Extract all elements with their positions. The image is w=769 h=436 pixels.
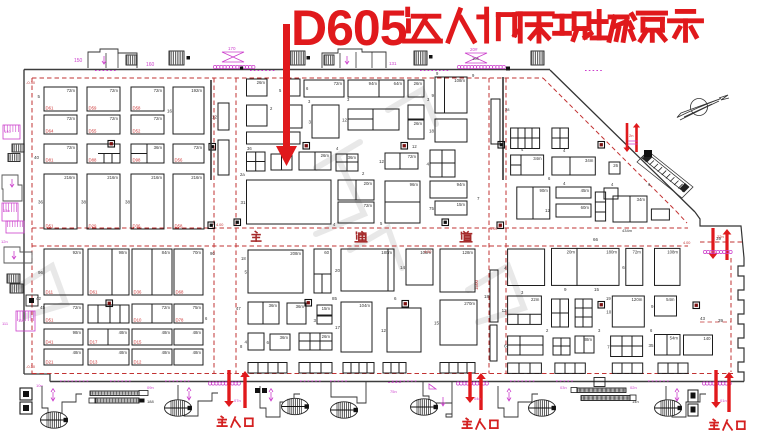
svg-text:D61: D61: [90, 290, 98, 295]
svg-text:104m: 104m: [359, 303, 370, 308]
svg-text:36: 36: [247, 146, 252, 151]
svg-text:D88: D88: [89, 158, 97, 163]
svg-text:75n: 75n: [390, 389, 397, 394]
svg-text:42: 42: [36, 296, 42, 301]
svg-text:18: 18: [241, 256, 246, 261]
svg-text:54m: 54m: [666, 297, 675, 302]
svg-text:39: 39: [718, 318, 724, 323]
svg-text:18: 18: [484, 294, 490, 299]
svg-text:D36: D36: [134, 290, 142, 295]
svg-text:34m: 34m: [585, 158, 594, 163]
svg-text:4.00: 4.00: [216, 223, 223, 227]
svg-text:98m: 98m: [73, 330, 82, 335]
svg-text:01n: 01n: [720, 398, 727, 403]
svg-text:90m: 90m: [539, 188, 548, 193]
svg-text:150: 150: [74, 58, 83, 64]
svg-text:36m: 36m: [269, 303, 278, 308]
svg-text:72m: 72m: [334, 81, 343, 86]
svg-text:D11: D11: [46, 290, 54, 295]
svg-text:12: 12: [545, 208, 551, 213]
svg-text:208m: 208m: [290, 251, 301, 256]
svg-text:20m: 20m: [364, 181, 373, 186]
svg-text:14n: 14n: [632, 399, 639, 404]
svg-text:216m: 216m: [107, 175, 118, 180]
svg-text:D64: D64: [46, 129, 54, 134]
svg-text:26m: 26m: [321, 153, 330, 158]
svg-text:D15: D15: [134, 340, 142, 345]
svg-text:140: 140: [703, 336, 711, 341]
svg-text:60: 60: [324, 250, 329, 255]
svg-text:216m: 216m: [191, 175, 202, 180]
svg-text:36: 36: [38, 200, 44, 205]
svg-text:04n: 04n: [474, 396, 481, 401]
svg-text:43: 43: [700, 316, 706, 321]
svg-text:12: 12: [412, 144, 417, 149]
svg-text:12: 12: [342, 118, 348, 123]
svg-text:110: 110: [18, 318, 25, 323]
svg-text:45: 45: [40, 305, 46, 310]
svg-text:-0.30: -0.30: [26, 80, 36, 85]
svg-text:22m: 22m: [531, 297, 540, 302]
svg-text:48m: 48m: [119, 330, 128, 335]
svg-text:D21: D21: [46, 360, 54, 365]
svg-text:4.00: 4.00: [490, 227, 497, 231]
svg-text:26m: 26m: [414, 121, 423, 126]
svg-text:D56: D56: [175, 158, 183, 163]
svg-text:75: 75: [429, 206, 435, 211]
svg-text:434m: 434m: [622, 228, 633, 233]
svg-text:72m: 72m: [110, 116, 119, 121]
svg-text:92m: 92m: [73, 250, 82, 255]
svg-text:72m: 72m: [73, 305, 82, 310]
svg-text:36m: 36m: [154, 145, 163, 150]
svg-text:72m: 72m: [408, 154, 417, 159]
svg-text:48m: 48m: [193, 330, 202, 335]
svg-text:72m: 72m: [154, 88, 163, 93]
svg-text:35: 35: [648, 343, 654, 348]
svg-text:104: 104: [472, 56, 479, 61]
svg-text:2n: 2n: [629, 133, 633, 138]
svg-text:15: 15: [594, 287, 600, 292]
svg-text:48m: 48m: [119, 350, 128, 355]
svg-text:160: 160: [146, 62, 155, 68]
svg-text:22n: 22n: [717, 234, 724, 239]
svg-text:131: 131: [389, 61, 397, 66]
svg-text:D51: D51: [46, 318, 54, 323]
svg-text:17: 17: [335, 325, 341, 330]
svg-text:180m: 180m: [381, 250, 392, 255]
svg-text:48m: 48m: [73, 350, 82, 355]
svg-text:72m: 72m: [67, 88, 76, 93]
svg-text:15: 15: [434, 321, 440, 326]
svg-text:D58: D58: [175, 224, 183, 229]
svg-text:-0.30: -0.30: [26, 364, 36, 369]
svg-text:D98: D98: [133, 158, 141, 163]
svg-text:38: 38: [81, 200, 87, 205]
svg-text:4.00: 4.00: [683, 241, 690, 245]
svg-text:94m: 94m: [457, 182, 466, 187]
svg-text:10: 10: [606, 310, 612, 315]
svg-text:108m: 108m: [454, 78, 465, 83]
svg-text:D605: D605: [291, 0, 407, 56]
svg-text:D36: D36: [133, 224, 141, 229]
svg-text:94m: 94m: [369, 81, 378, 86]
svg-text:72m: 72m: [364, 203, 373, 208]
svg-text:36m: 36m: [280, 335, 289, 340]
svg-text:D68: D68: [176, 290, 184, 295]
svg-text:18: 18: [429, 129, 435, 134]
svg-text:D52: D52: [133, 129, 141, 134]
svg-text:48m: 48m: [193, 350, 202, 355]
svg-text:D59: D59: [89, 106, 97, 111]
svg-text:72m: 72m: [162, 305, 171, 310]
svg-text:120m: 120m: [632, 297, 643, 302]
svg-text:D29: D29: [89, 224, 97, 229]
svg-text:98m: 98m: [119, 250, 128, 255]
svg-text:72m: 72m: [67, 145, 76, 150]
svg-text:90: 90: [210, 251, 215, 256]
svg-text:72m: 72m: [110, 88, 119, 93]
svg-text:12: 12: [502, 308, 508, 313]
svg-text:D10: D10: [134, 318, 142, 323]
svg-text:48m: 48m: [162, 350, 171, 355]
svg-text:72m: 72m: [154, 116, 163, 121]
svg-text:28: 28: [505, 107, 510, 112]
svg-text:216m: 216m: [151, 175, 162, 180]
svg-text:07n: 07n: [234, 398, 241, 403]
svg-text:40: 40: [34, 155, 40, 160]
svg-text:45m: 45m: [581, 188, 590, 193]
svg-text:128m: 128m: [462, 250, 473, 255]
svg-text:D51: D51: [46, 224, 54, 229]
svg-text:47: 47: [236, 306, 241, 311]
svg-text:75m: 75m: [193, 305, 202, 310]
svg-text:26m: 26m: [322, 334, 331, 339]
svg-text:02n: 02n: [630, 385, 637, 390]
svg-text:D81: D81: [46, 158, 54, 163]
svg-text:D78: D78: [176, 318, 184, 323]
svg-text:09n: 09n: [147, 385, 154, 390]
svg-text:72m: 72m: [194, 145, 203, 150]
svg-text:D41: D41: [46, 340, 54, 345]
svg-text:72m: 72m: [67, 116, 76, 121]
svg-text:48m: 48m: [162, 330, 171, 335]
svg-text:188: 188: [147, 399, 154, 404]
svg-text:2a: 2a: [240, 172, 245, 177]
svg-text:26m: 26m: [257, 80, 266, 85]
svg-text:14: 14: [400, 265, 406, 270]
svg-text:85: 85: [332, 296, 338, 301]
svg-text:19: 19: [606, 296, 611, 301]
svg-text:38: 38: [125, 200, 131, 205]
svg-text:12: 12: [212, 115, 218, 120]
svg-text:34m: 34m: [637, 197, 646, 202]
svg-text:108m: 108m: [667, 249, 678, 254]
svg-text:D17: D17: [90, 340, 98, 345]
svg-text:34m: 34m: [533, 156, 542, 161]
svg-text:12: 12: [379, 159, 385, 164]
svg-text:60m: 60m: [581, 205, 590, 210]
svg-text:D61: D61: [46, 106, 54, 111]
svg-text:D12: D12: [134, 360, 142, 365]
svg-text:20#: 20#: [470, 47, 478, 52]
svg-text:12: 12: [381, 328, 387, 333]
svg-text:20m: 20m: [567, 249, 576, 254]
svg-text:72m: 72m: [632, 249, 641, 254]
svg-text:4.00: 4.00: [424, 250, 431, 254]
svg-text:192m: 192m: [191, 88, 202, 93]
svg-text:270m: 270m: [464, 301, 475, 306]
svg-text:54m: 54m: [670, 336, 679, 341]
svg-text:15m: 15m: [322, 306, 331, 311]
svg-text:111: 111: [2, 321, 9, 326]
svg-text:15m: 15m: [457, 202, 466, 207]
svg-text:12n: 12n: [1, 239, 8, 244]
svg-text:D13: D13: [90, 360, 98, 365]
svg-text:70m: 70m: [193, 250, 202, 255]
svg-text:170: 170: [228, 46, 236, 51]
svg-text:96: 96: [38, 270, 44, 275]
svg-text:D58: D58: [133, 106, 141, 111]
svg-text:03n: 03n: [560, 385, 567, 390]
svg-text:31: 31: [240, 200, 246, 205]
svg-text:38m: 38m: [584, 337, 593, 342]
svg-text:84m: 84m: [162, 250, 171, 255]
svg-text:20: 20: [335, 268, 341, 273]
svg-text:26: 26: [613, 163, 618, 168]
svg-text:96m: 96m: [410, 182, 419, 187]
svg-text:16: 16: [167, 109, 173, 114]
svg-text:64m: 64m: [394, 81, 403, 86]
svg-text:216m: 216m: [64, 175, 75, 180]
svg-text:36m: 36m: [296, 304, 305, 309]
svg-text:13n: 13n: [3, 208, 10, 213]
svg-text:140: 140: [4, 129, 11, 134]
svg-text:26m: 26m: [414, 81, 423, 86]
svg-text:D55: D55: [89, 129, 97, 134]
svg-text:36m: 36m: [348, 155, 357, 160]
svg-text:66: 66: [593, 237, 599, 242]
svg-text:180m: 180m: [606, 249, 617, 254]
